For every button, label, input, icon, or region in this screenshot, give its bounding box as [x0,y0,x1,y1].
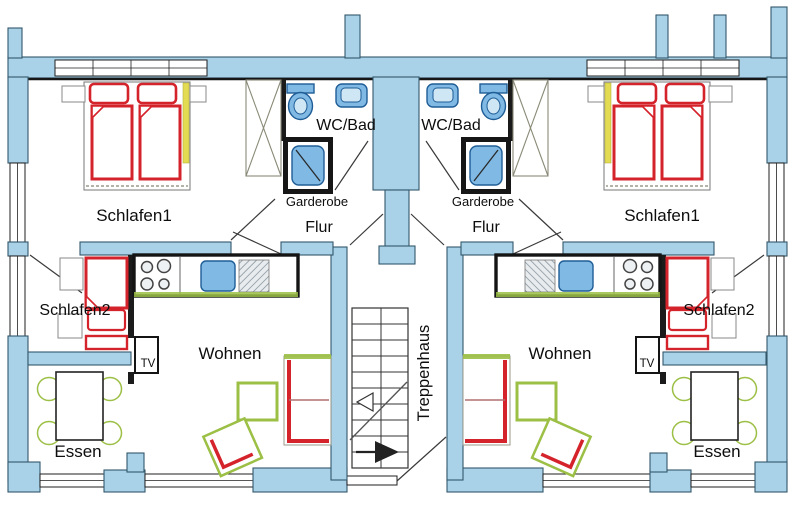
bottom-pier-left [104,470,145,492]
dining-table [56,372,103,440]
room-label-tv-right: TV [640,358,655,370]
bathroom-sink [336,84,367,107]
stove-burner [141,278,153,290]
left-wall-lower [8,336,28,482]
bottom-left-corner [8,462,40,492]
room-label-flur-left: Flur [305,219,333,236]
stove-burner [159,279,169,289]
side-table [238,383,277,420]
dresser [60,258,83,290]
right-wall-upper [767,77,787,163]
stair-treads [352,324,408,452]
room-label-wohnen-left: Wohnen [198,344,261,363]
right-wall-pier [767,242,787,256]
wall-schlafen2-essen [28,352,131,365]
right-wall-lower [767,336,787,482]
door-swing-wohnen [233,232,281,254]
room-label-essen-right: Essen [693,442,740,461]
central-wall-base [379,246,415,264]
bottom-notch-right [650,453,667,472]
stairwell-bottom-wall [347,476,397,485]
room-label-wohnen-right: Wohnen [528,344,591,363]
room-label-treppenhaus: Treppenhaus [415,325,433,422]
bed-bench [86,336,127,349]
shower [283,137,333,194]
room-label-garderobe-right: Garderobe [452,194,514,209]
blanket [92,106,132,179]
blanket [140,106,180,179]
wall-stub-right-2 [714,15,726,58]
wall-schlafen1-wc [281,79,286,141]
wardrobe-closet [246,80,281,176]
floor-plan-canvas: Schlafen1 Schlafen1 WC/Bad WC/Bad Garder… [0,0,795,530]
room-label-schlafen2-left: Schlafen2 [39,302,110,319]
kitchen-sink [201,261,235,291]
room-label-schlafen1-right: Schlafen1 [624,206,700,225]
wall-stub-right-corner [771,7,787,58]
central-wall-stem [385,190,409,248]
stair-direction-arrow [375,441,399,463]
toilet [287,84,314,120]
nightstand-right [190,86,206,102]
wall-stub-center [345,15,360,58]
drainer [239,260,269,292]
double-bed [62,82,206,190]
sofa [284,354,331,445]
armchair-tilted [203,418,262,476]
room-label-garderobe-left: Garderobe [286,194,348,209]
room-label-flur-right: Flur [472,219,500,236]
wall-stub-left [8,28,22,58]
central-party-wall [373,77,419,190]
stair-break-line [350,382,407,440]
stairwell-wall-left [331,247,347,480]
entry-door-swing-right [411,214,444,245]
stove-burner [158,260,171,273]
pillow [90,84,128,103]
dining-set [38,372,122,445]
floor-plan: Schlafen1 Schlafen1 WC/Bad WC/Bad Garder… [0,0,795,530]
room-label-tv-left: TV [141,358,156,370]
blanket [86,258,127,308]
building-entrance-door-swing [397,437,446,481]
wall-stub-right-1 [656,15,668,58]
door-swing-schlafen1 [231,199,275,240]
stairwell-wall-right [447,247,463,480]
kitchen-counter [134,255,298,297]
left-wall-upper [8,77,28,163]
wall-flur-lower-right [281,242,333,255]
door-swing-wc [335,141,368,190]
bottom-pier-right [650,470,691,492]
entry-door-swing-left [350,214,383,245]
left-wall-pier [8,242,28,256]
room-label-schlafen2-right: Schlafen2 [683,302,754,319]
bottom-right-corner [755,462,787,492]
schlafen1-window [55,60,207,76]
stove-burner [142,262,153,273]
room-label-wcbad-left: WC/Bad [316,117,376,134]
stair-up-arrow [357,393,373,411]
wall-tv-stub [128,372,134,384]
room-label-essen-left: Essen [54,442,101,461]
room-label-schlafen1-left: Schlafen1 [96,206,172,225]
nightstand-left [62,86,85,102]
pillow [138,84,176,103]
bottom-notch-left [127,453,144,472]
wall-flur-lower [80,242,231,255]
room-label-wcbad-right: WC/Bad [421,117,481,134]
